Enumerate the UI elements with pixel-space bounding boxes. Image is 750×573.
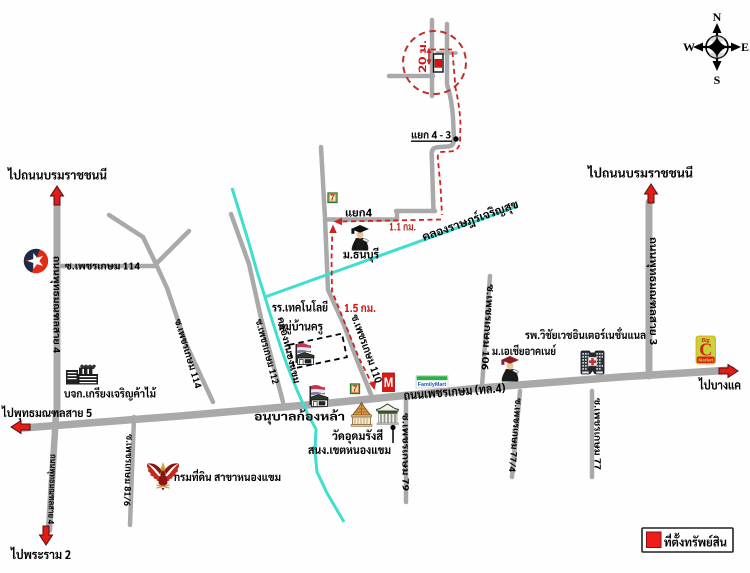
svg-text:E: E bbox=[741, 40, 749, 54]
svg-text:Market: Market bbox=[698, 358, 713, 363]
svg-text:W: W bbox=[683, 40, 695, 54]
svg-text:M: M bbox=[384, 374, 394, 390]
svg-text:7: 7 bbox=[330, 194, 335, 203]
svg-text:FamilyMart: FamilyMart bbox=[418, 382, 447, 388]
svg-text:N: N bbox=[713, 10, 722, 24]
svg-text:7: 7 bbox=[353, 385, 358, 394]
svg-text:S: S bbox=[714, 73, 721, 87]
